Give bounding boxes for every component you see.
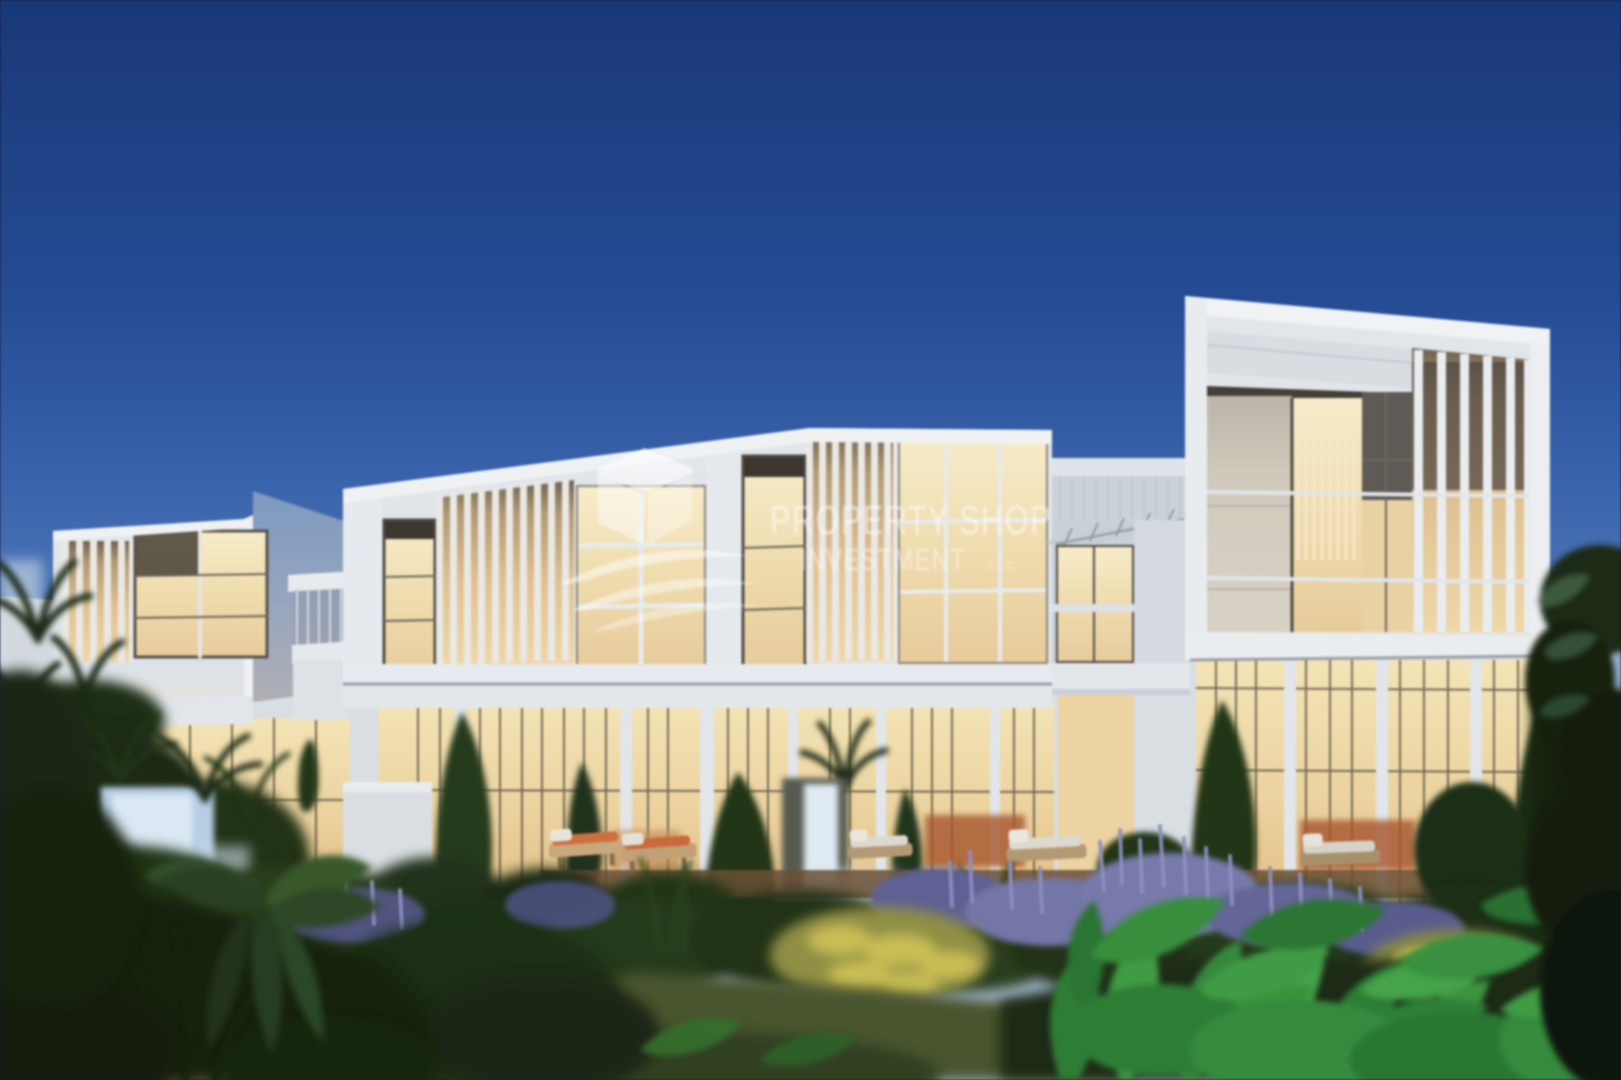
svg-text:L.L.C: L.L.C <box>988 560 1014 572</box>
svg-text:PROPERTY SHOP: PROPERTY SHOP <box>770 497 1052 543</box>
svg-text:INVESTMENT: INVESTMENT <box>800 542 966 577</box>
